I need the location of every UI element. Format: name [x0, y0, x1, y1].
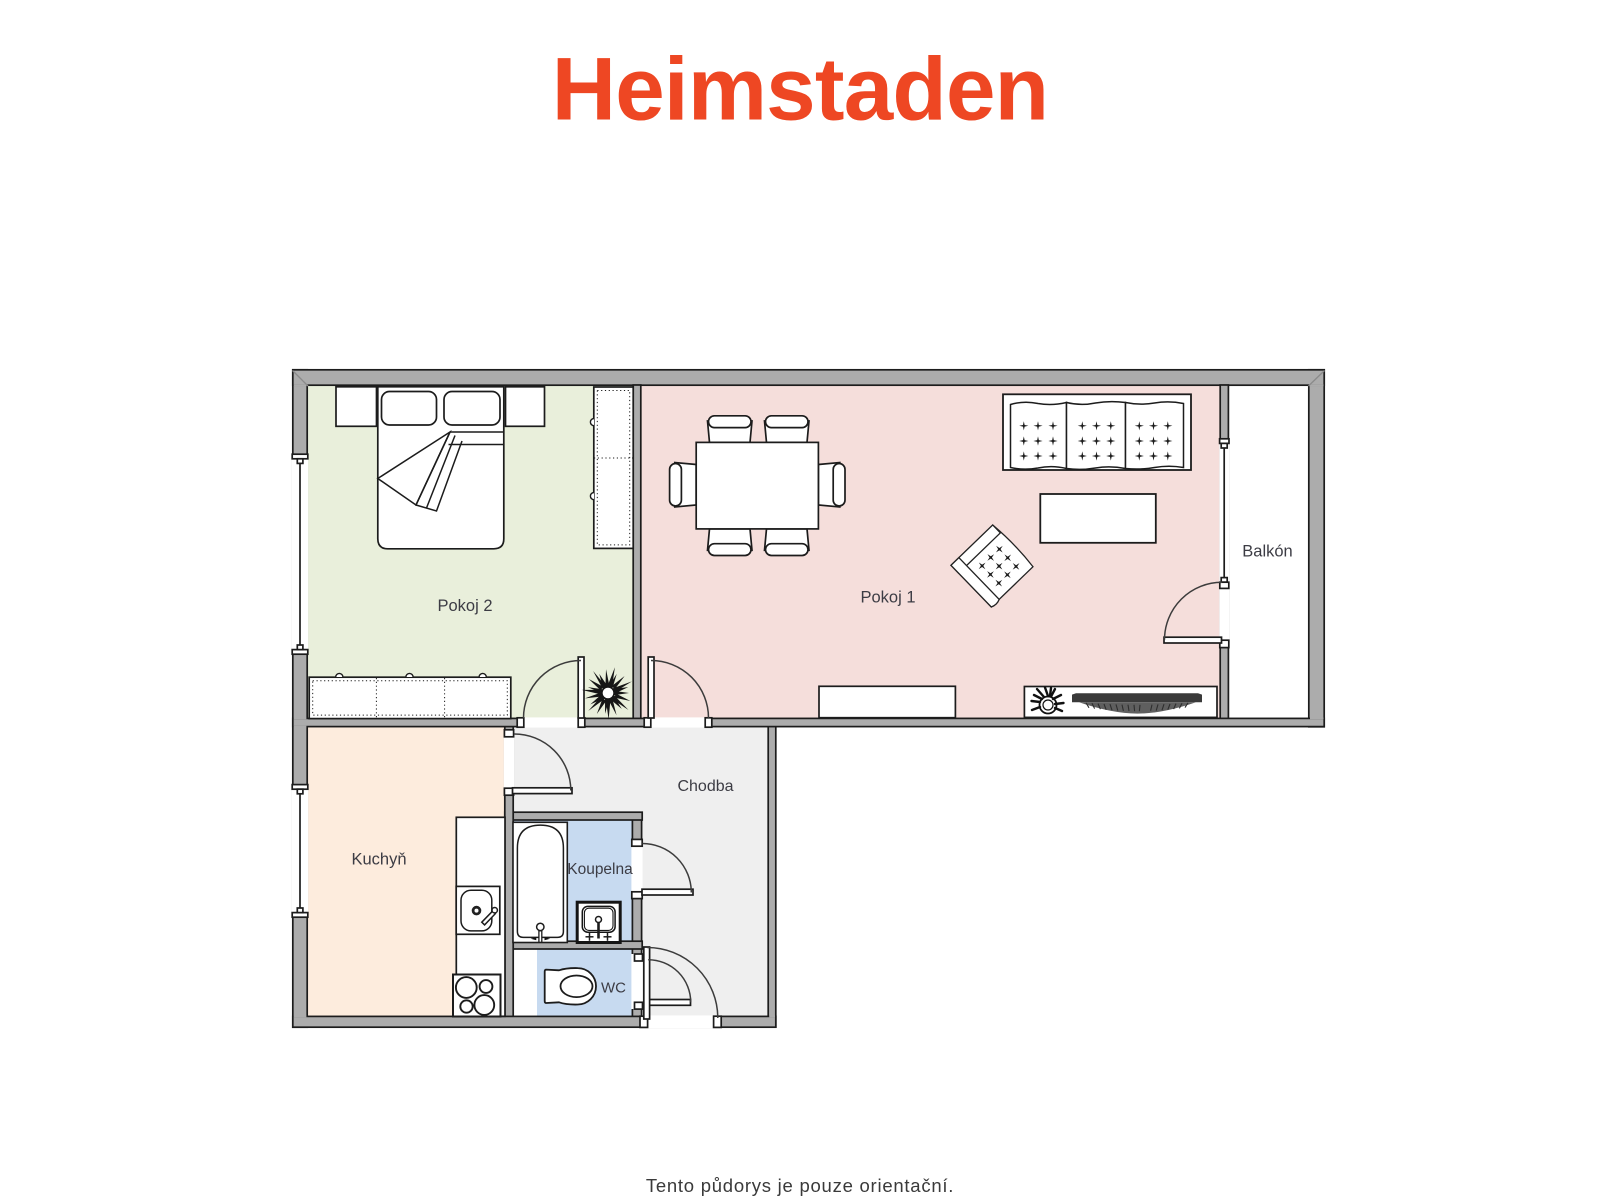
svg-text:Chodba: Chodba: [677, 778, 733, 795]
svg-text:Pokoj 1: Pokoj 1: [860, 589, 915, 607]
svg-text:Balkón: Balkón: [1242, 543, 1292, 561]
svg-text:Kuchyň: Kuchyň: [351, 851, 406, 869]
svg-text:Heimstaden: Heimstaden: [552, 39, 1049, 139]
svg-text:Tento půdorys je pouze orienta: Tento půdorys je pouze orientační.: [646, 1175, 954, 1196]
svg-text:Pokoj 2: Pokoj 2: [437, 597, 492, 615]
svg-text:WC: WC: [601, 980, 626, 997]
svg-text:Koupelna: Koupelna: [567, 861, 633, 878]
